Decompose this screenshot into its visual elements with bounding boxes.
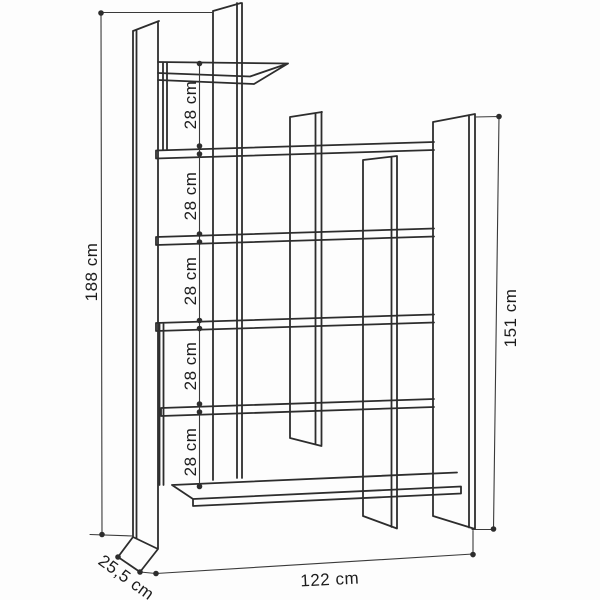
shelf-5 bbox=[161, 399, 434, 416]
bottom-shelf bbox=[172, 473, 461, 507]
depth-label: 25,5 cm bbox=[95, 551, 158, 600]
dimension-lines bbox=[90, 13, 499, 574]
diagram-canvas: 188 cm 28 cm 28 cm 28 cm 28 cm 28 cm 151… bbox=[0, 0, 600, 600]
shelf-gap-label-4: 28 cm bbox=[181, 342, 200, 391]
right-center-divider bbox=[363, 156, 397, 529]
width-dimension-line bbox=[140, 531, 473, 574]
middle-divider bbox=[290, 112, 322, 446]
overall-height-label: 188 cm bbox=[82, 243, 101, 302]
shelf-gap-label-1: 28 cm bbox=[181, 81, 200, 130]
right-height-dimension-line bbox=[472, 117, 499, 530]
overall-width-label: 122 cm bbox=[300, 568, 360, 590]
shelf-gap-label-3: 28 cm bbox=[181, 257, 200, 306]
shelf-gap-label-2: 28 cm bbox=[181, 172, 200, 221]
inner-left-upright bbox=[160, 63, 168, 485]
top-shelf bbox=[158, 62, 288, 84]
left-tall-panel bbox=[118, 21, 159, 572]
right-side-panel bbox=[433, 114, 475, 529]
bookshelf-outline bbox=[118, 3, 475, 572]
bookshelf-dimension-diagram: 188 cm 28 cm 28 cm 28 cm 28 cm 28 cm 151… bbox=[0, 0, 600, 600]
shelf-gap-label-5: 28 cm bbox=[181, 428, 200, 477]
right-side-height-label: 151 cm bbox=[501, 289, 520, 348]
